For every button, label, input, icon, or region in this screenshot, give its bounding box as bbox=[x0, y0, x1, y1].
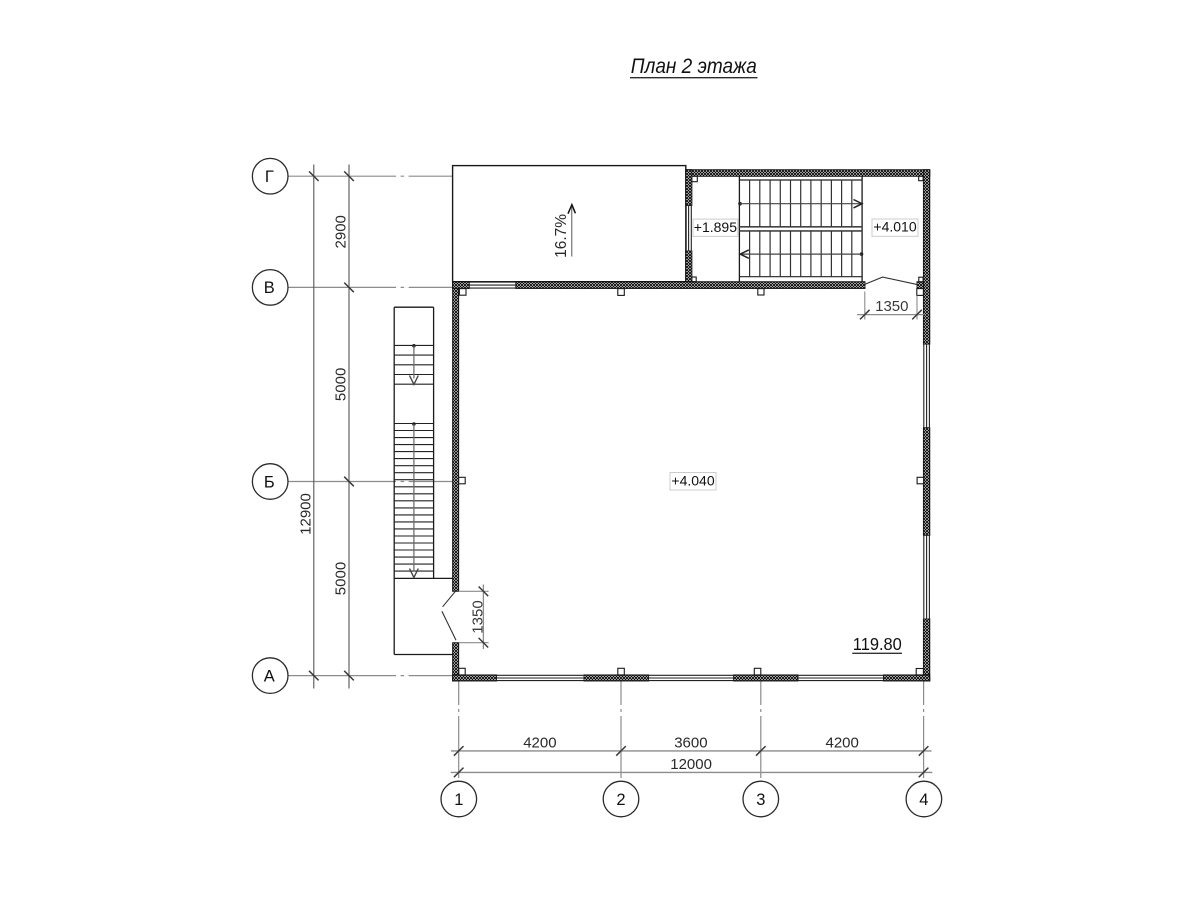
svg-text:А: А bbox=[264, 667, 275, 685]
svg-text:+4.010: +4.010 bbox=[873, 219, 916, 235]
svg-text:1350: 1350 bbox=[469, 600, 486, 633]
svg-text:4200: 4200 bbox=[523, 734, 556, 751]
svg-text:4200: 4200 bbox=[826, 734, 859, 751]
svg-text:4: 4 bbox=[919, 791, 928, 809]
svg-text:12000: 12000 bbox=[670, 756, 712, 773]
svg-text:3600: 3600 bbox=[674, 734, 707, 751]
svg-text:+4.040: +4.040 bbox=[671, 472, 714, 488]
svg-text:Б: Б bbox=[264, 473, 275, 491]
svg-text:В: В bbox=[264, 279, 275, 297]
svg-text:2: 2 bbox=[616, 791, 625, 809]
svg-text:План 2 этажа: План 2 этажа bbox=[631, 54, 757, 78]
svg-text:119.80: 119.80 bbox=[853, 634, 902, 654]
svg-text:5000: 5000 bbox=[332, 562, 349, 595]
svg-text:+1.895: +1.895 bbox=[694, 219, 737, 235]
svg-text:1350: 1350 bbox=[875, 298, 908, 315]
svg-text:2900: 2900 bbox=[332, 215, 349, 248]
svg-text:Г: Г bbox=[265, 168, 274, 186]
svg-text:3: 3 bbox=[756, 791, 765, 809]
svg-text:16.7%: 16.7% bbox=[553, 214, 570, 258]
svg-text:12900: 12900 bbox=[298, 493, 315, 535]
svg-text:1: 1 bbox=[454, 791, 463, 809]
svg-text:5000: 5000 bbox=[332, 368, 349, 401]
